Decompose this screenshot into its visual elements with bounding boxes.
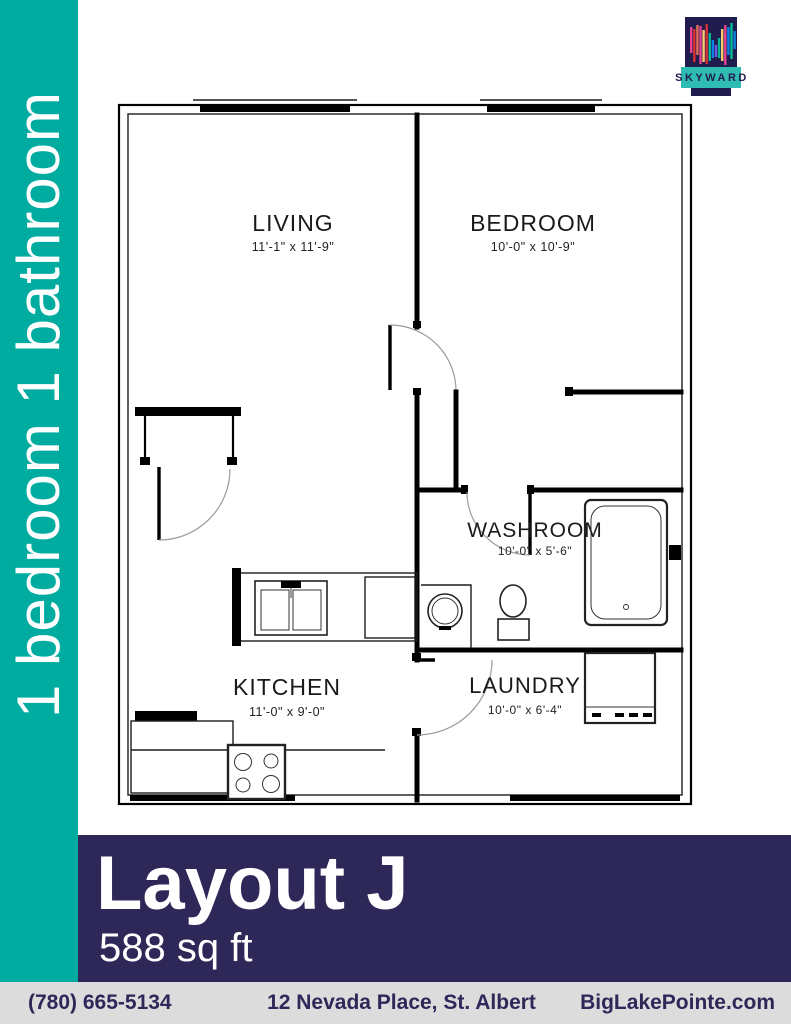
- bathroom-sink-icon: [428, 594, 462, 630]
- room-label-bedroom: BEDROOM: [470, 210, 596, 236]
- room-dims-laundry: 10'-0" x 6'-4": [488, 703, 562, 717]
- room-dims-living: 11'-1" x 11'-9": [252, 240, 335, 254]
- footer-address: 12 Nevada Place, St. Albert: [267, 991, 536, 1015]
- room-label-laundry: LAUNDRY: [469, 673, 581, 698]
- logo-tab: [691, 88, 731, 96]
- room-label-kitchen: KITCHEN: [233, 674, 341, 700]
- window-icon: [487, 104, 595, 112]
- floor-plan: LIVING 11'-1" x 11'-9" BEDROOM 10'-0" x …: [115, 95, 695, 820]
- layout-title: Layout J: [96, 841, 791, 926]
- stove-icon: [228, 745, 285, 799]
- footer: (780) 665-5134 12 Nevada Place, St. Albe…: [0, 982, 791, 1024]
- room-label-washroom: WASHROOM: [467, 519, 603, 542]
- washer-icon: [585, 653, 655, 723]
- room-dims-washroom: 10'-0" x 5'-6": [498, 544, 572, 558]
- logo-background: [685, 17, 737, 69]
- skyline-bars-icon: [685, 17, 737, 69]
- logo-wordmark: SKYWARD: [681, 67, 741, 88]
- flyer-page: 1 bedroom 1 bathroom SKYWAR: [0, 0, 791, 1024]
- room-dims-kitchen: 11'-0" x 9'-0": [249, 705, 325, 719]
- toilet-icon: [498, 585, 529, 640]
- skyward-logo: SKYWARD: [678, 10, 746, 98]
- footer-website: BigLakePointe.com: [580, 991, 775, 1015]
- banner: Layout J 588 sq ft: [78, 835, 791, 982]
- kitchen-sink-icon: [255, 581, 327, 635]
- window-icon: [200, 104, 350, 112]
- footer-phone: (780) 665-5134: [28, 991, 172, 1015]
- sidebar-label: 1 bedroom 1 bathroom: [0, 0, 78, 982]
- room-dims-bedroom: 10'-0" x 10'-9": [491, 240, 575, 254]
- floor-plan-drawing: LIVING 11'-1" x 11'-9" BEDROOM 10'-0" x …: [115, 95, 695, 820]
- room-label-living: LIVING: [252, 210, 333, 236]
- dishwasher-icon: [365, 577, 415, 638]
- sidebar: 1 bedroom 1 bathroom: [0, 0, 78, 982]
- layout-area: 588 sq ft: [96, 927, 791, 969]
